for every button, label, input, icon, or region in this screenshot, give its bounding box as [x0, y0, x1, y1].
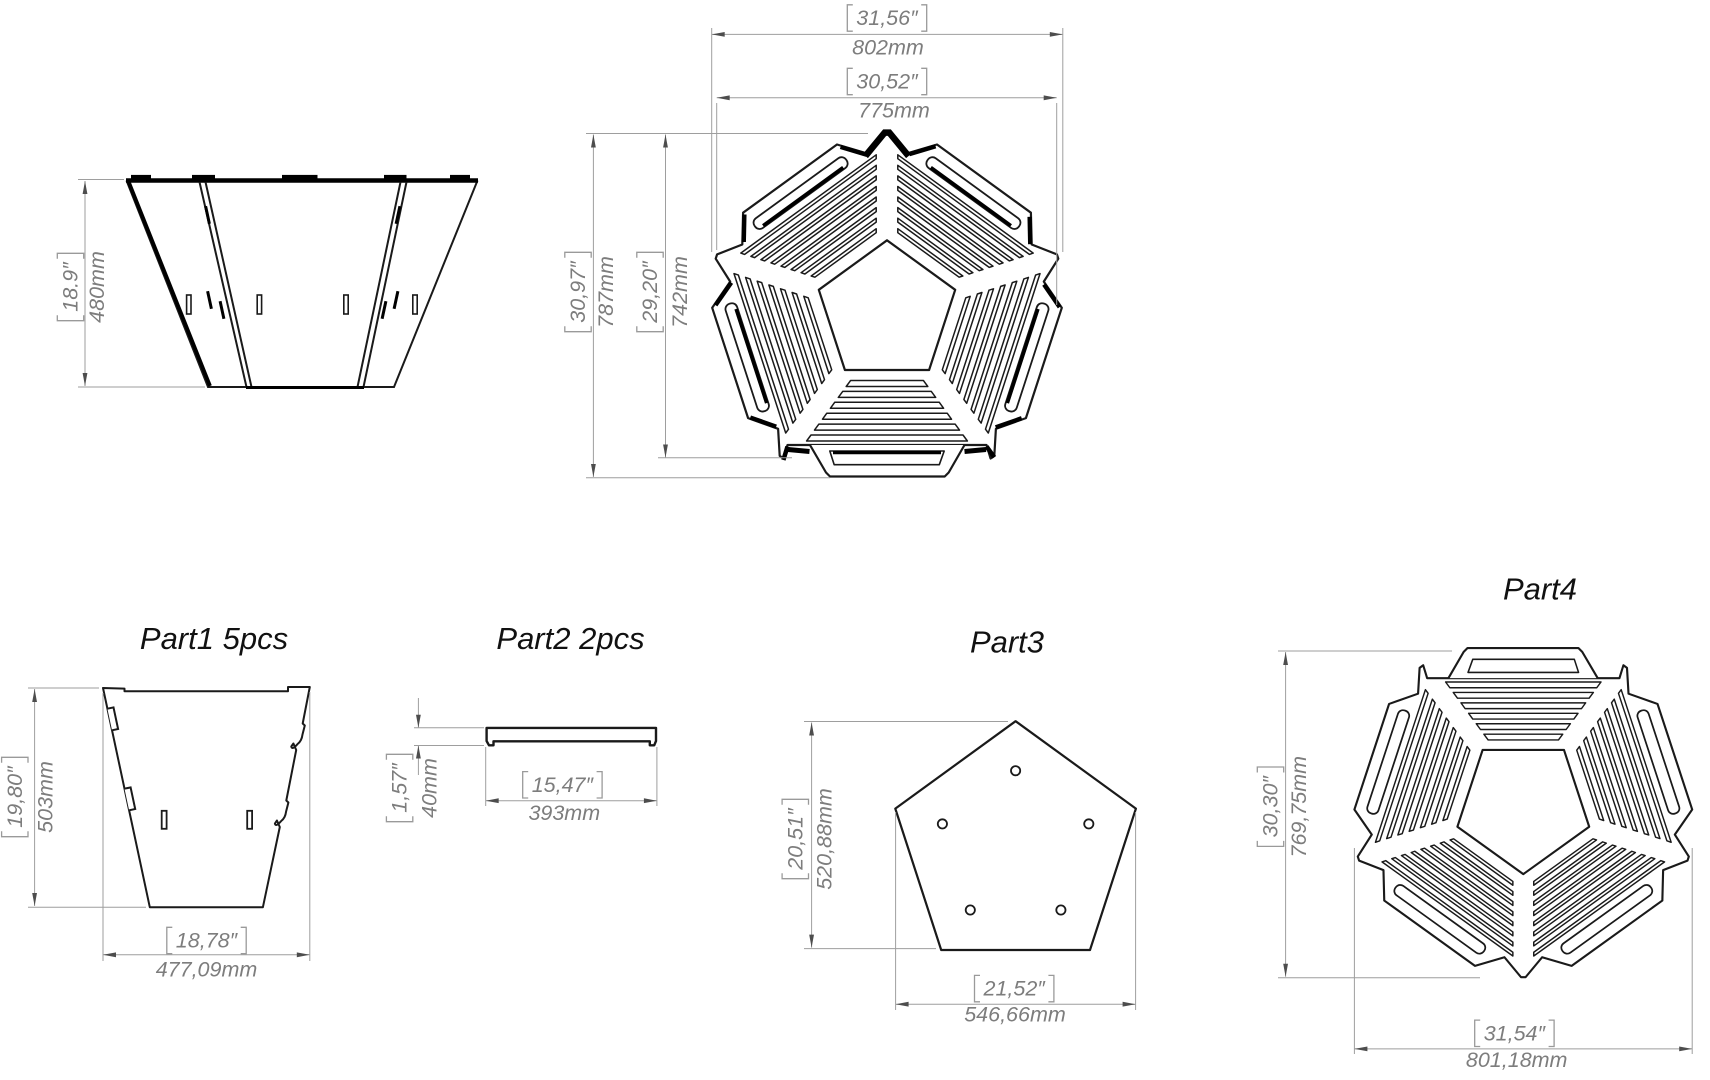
- svg-text:801,18mm: 801,18mm: [1466, 1048, 1568, 1072]
- svg-text:520,88mm: 520,88mm: [813, 788, 837, 890]
- svg-text:30,30″: 30,30″: [1259, 775, 1283, 838]
- svg-text:15,47″: 15,47″: [532, 773, 595, 797]
- svg-text:40mm: 40mm: [418, 758, 442, 818]
- svg-text:19,80″: 19,80″: [3, 765, 27, 828]
- svg-text:18.9″: 18.9″: [59, 261, 83, 312]
- svg-text:29,20″: 29,20″: [638, 260, 662, 324]
- svg-text:775mm: 775mm: [858, 99, 930, 123]
- svg-text:802mm: 802mm: [852, 36, 924, 60]
- svg-text:21,52″: 21,52″: [982, 977, 1046, 1001]
- svg-text:477,09mm: 477,09mm: [156, 958, 258, 982]
- svg-text:393mm: 393mm: [528, 801, 600, 825]
- svg-text:546,66mm: 546,66mm: [964, 1003, 1066, 1027]
- svg-text:31,54″: 31,54″: [1484, 1021, 1547, 1045]
- svg-text:Part1 5pcs: Part1 5pcs: [140, 621, 288, 656]
- svg-text:742mm: 742mm: [668, 256, 692, 328]
- svg-text:Part3: Part3: [970, 625, 1044, 660]
- svg-text:Part2 2pcs: Part2 2pcs: [496, 621, 644, 656]
- svg-text:787mm: 787mm: [594, 256, 618, 328]
- svg-text:30,97″: 30,97″: [566, 260, 590, 323]
- svg-text:31,56″: 31,56″: [856, 6, 919, 30]
- svg-text:Part4: Part4: [1503, 572, 1577, 607]
- svg-text:18,78″: 18,78″: [176, 929, 239, 953]
- svg-text:20,51″: 20,51″: [783, 807, 807, 871]
- svg-text:769,75mm: 769,75mm: [1287, 756, 1311, 858]
- svg-text:1,57″: 1,57″: [388, 762, 412, 813]
- svg-text:503mm: 503mm: [34, 761, 58, 833]
- svg-text:480mm: 480mm: [85, 251, 109, 323]
- svg-text:30,52″: 30,52″: [856, 70, 919, 94]
